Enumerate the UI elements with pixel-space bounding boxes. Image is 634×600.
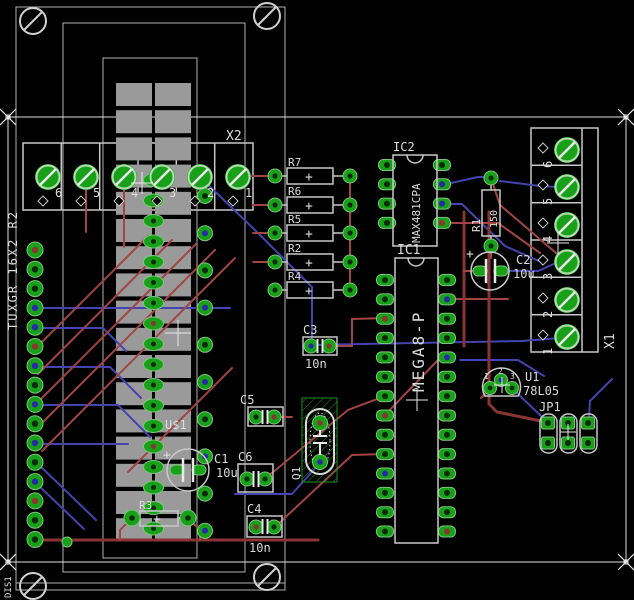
- c4-name-label: C4: [247, 502, 261, 516]
- c4-value-label: 10n: [249, 541, 271, 555]
- component-r7[interactable]: R7 +: [268, 156, 357, 185]
- polarity-mark: +: [305, 256, 313, 271]
- r6-name-label: R6: [288, 185, 301, 198]
- x2-pin-number: 3: [169, 186, 176, 200]
- jp1-name-label: JP1: [539, 400, 561, 414]
- component-q1[interactable]: Q1: [290, 398, 337, 482]
- top-copper-trace[interactable]: [330, 318, 385, 346]
- lcd-pad[interactable]: [155, 137, 191, 160]
- c5-name-label: C5: [240, 393, 254, 407]
- ic2-value-label: MAX481CPA: [410, 183, 423, 243]
- bottom-copper-trace[interactable]: [312, 338, 560, 345]
- mounting-hole[interactable]: [20, 8, 46, 34]
- polarity-mark: +: [305, 284, 313, 299]
- lcd-pad[interactable]: [116, 137, 152, 160]
- top-copper-trace[interactable]: [491, 178, 563, 259]
- c1-value-label: 10u: [216, 466, 238, 480]
- bottom-copper-trace[interactable]: [589, 379, 612, 417]
- bottom-copper-trace[interactable]: [200, 177, 312, 339]
- board-outlines: [0, 3, 634, 599]
- u1-value-label: 78L05: [523, 384, 559, 398]
- polarity-mark: +: [153, 512, 161, 527]
- x2-pin-number: 2: [207, 186, 214, 200]
- display-name-label: U$1: [165, 418, 187, 432]
- x1-pin-number: 1: [541, 348, 555, 355]
- mounting-hole[interactable]: [20, 573, 46, 599]
- component-c6[interactable]: C6: [238, 450, 273, 492]
- lcd-pad[interactable]: [116, 110, 152, 133]
- c2-name-label: C2: [516, 253, 530, 267]
- c3-name-label: C3: [303, 323, 317, 337]
- drill-hole: [538, 218, 548, 228]
- lcd-pad[interactable]: [155, 83, 191, 106]
- c1-name-label: C1: [214, 452, 228, 466]
- component-c2[interactable]: + C2 10u: [466, 247, 535, 290]
- drill-hole: [538, 143, 548, 153]
- u1-name-label: U1: [525, 370, 539, 384]
- component-u1[interactable]: 1 2 3 U1 78L05: [483, 367, 560, 398]
- component-c3[interactable]: C3 10n: [303, 323, 337, 371]
- component-c4[interactable]: C4 10n: [247, 502, 282, 555]
- component-r5[interactable]: R5 +: [268, 213, 357, 242]
- q1-name-label: Q1: [290, 467, 303, 480]
- drill-hole: [538, 255, 548, 265]
- c6-name-label: C6: [238, 450, 252, 464]
- lcd-pad[interactable]: [116, 83, 152, 106]
- x1-label: X1: [603, 333, 618, 349]
- component-c5[interactable]: C5: [240, 393, 283, 426]
- board-drawing: 654321 654321 IC2 MAX481CPA IC1 MEGA8-P …: [0, 0, 634, 600]
- c3-value-label: 10n: [305, 357, 327, 371]
- component-ic2[interactable]: IC2 MAX481CPA: [393, 140, 437, 246]
- via[interactable]: [62, 537, 72, 547]
- ic1-name-label: IC1: [397, 243, 420, 258]
- r1-name-label: R1: [470, 219, 483, 232]
- x2-pin-number: 1: [245, 186, 252, 200]
- ic1-value-label: MEGA8-P: [409, 311, 428, 392]
- component-r6[interactable]: R6 +: [268, 185, 357, 214]
- x1-terminal-pads: 654321: [538, 137, 580, 355]
- r3-name-label: R3: [139, 499, 152, 512]
- left-header-pads: [27, 242, 43, 548]
- lcd-pad[interactable]: [155, 110, 191, 133]
- polarity-mark: +: [305, 199, 313, 214]
- x2-label: X2: [226, 129, 242, 144]
- x1-pin-number: 5: [541, 198, 555, 205]
- polarity-mark: +: [466, 247, 474, 262]
- r7-name-label: R7: [288, 156, 301, 169]
- polarity-mark: +: [305, 170, 313, 185]
- lcd-side-pads: [198, 189, 213, 539]
- drill-hole: [38, 196, 48, 206]
- u1-pin-number: 1: [484, 372, 489, 381]
- mounting-hole[interactable]: [254, 564, 280, 590]
- pin1-notch-icon: [407, 155, 423, 163]
- component-r1[interactable]: R1 150: [470, 171, 500, 253]
- u1-pin-number: 3: [510, 372, 515, 381]
- x2-pin-number: 5: [93, 186, 100, 200]
- c2-value-label: 10u: [513, 267, 535, 281]
- u1-pin-number: 2: [498, 367, 503, 376]
- x1-pin-number: 6: [541, 161, 555, 168]
- display-board-label: DIS1: [4, 576, 14, 598]
- component-r4[interactable]: R4 +: [268, 270, 357, 299]
- x2-pin-number: 6: [55, 186, 62, 200]
- r2-name-label: R2: [288, 242, 301, 255]
- pin1-notch-icon: [408, 258, 424, 266]
- r1-value-label: 150: [489, 210, 500, 228]
- ic2-name-label: IC2: [393, 140, 415, 154]
- drill-hole: [538, 293, 548, 303]
- x1-pin-number: 2: [541, 311, 555, 318]
- display-type-label: TUXGR 16X2 R2: [6, 210, 20, 330]
- x1-pin-number: 3: [541, 273, 555, 280]
- drill-hole: [76, 196, 86, 206]
- x2-pin-number: 4: [131, 186, 138, 200]
- r5-name-label: R5: [288, 213, 301, 226]
- bottom-copper-trace[interactable]: [500, 181, 558, 187]
- polarity-mark: +: [163, 448, 171, 463]
- drill-hole: [538, 180, 548, 190]
- polarity-mark: +: [305, 227, 313, 242]
- pcb-editor-canvas[interactable]: 654321 654321 IC2 MAX481CPA IC1 MEGA8-P …: [0, 0, 634, 600]
- x1-pin-number: 4: [541, 236, 555, 243]
- r4-name-label: R4: [288, 270, 302, 283]
